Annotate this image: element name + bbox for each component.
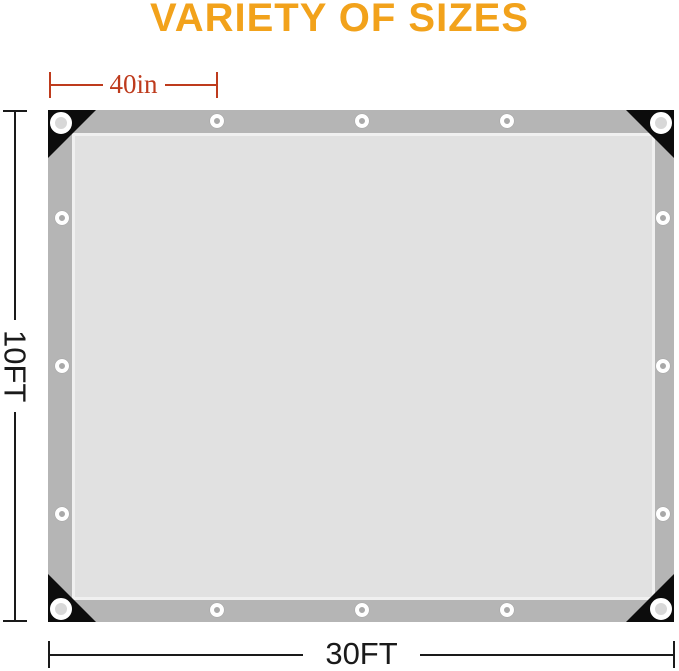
grommet-icon xyxy=(656,211,670,225)
dim-tick-bottom xyxy=(3,620,27,622)
dim-line-segment xyxy=(50,654,303,656)
dim-tick-right xyxy=(216,72,218,98)
grommet-icon xyxy=(50,112,72,134)
dim-label-40in: 40in xyxy=(103,71,165,98)
grommet-icon xyxy=(210,114,224,128)
tarp-surface xyxy=(72,133,655,600)
grommet-icon xyxy=(500,603,514,617)
dim-line-segment xyxy=(420,654,673,656)
grommet-icon xyxy=(55,507,69,521)
grommet-icon xyxy=(355,603,369,617)
grommet-icon xyxy=(210,603,224,617)
dimension-width: 30FT xyxy=(48,641,675,668)
grommet-icon xyxy=(650,112,672,134)
dim-tick-right xyxy=(673,641,675,668)
grommet-icon xyxy=(55,211,69,225)
dim-label-30ft: 30FT xyxy=(303,638,419,669)
dimension-height: 10FT xyxy=(3,110,27,622)
page-title: VARIETY OF SIZES xyxy=(0,0,679,41)
dim-line-segment xyxy=(14,412,16,620)
grommet-icon xyxy=(650,598,672,620)
grommet-icon xyxy=(50,598,72,620)
tarp-graphic xyxy=(48,110,674,622)
dim-line-segment xyxy=(165,84,217,86)
grommet-icon xyxy=(500,114,514,128)
dim-line-segment xyxy=(51,84,103,86)
grommet-icon xyxy=(55,359,69,373)
grommet-icon xyxy=(355,114,369,128)
dimension-grommet-spacing: 40in xyxy=(49,72,218,98)
dim-label-10ft: 10FT xyxy=(0,320,31,412)
grommet-icon xyxy=(656,359,670,373)
dim-line-segment xyxy=(14,112,16,320)
grommet-icon xyxy=(656,507,670,521)
product-image: VARIETY OF SIZES 40in 10FT xyxy=(0,0,679,671)
